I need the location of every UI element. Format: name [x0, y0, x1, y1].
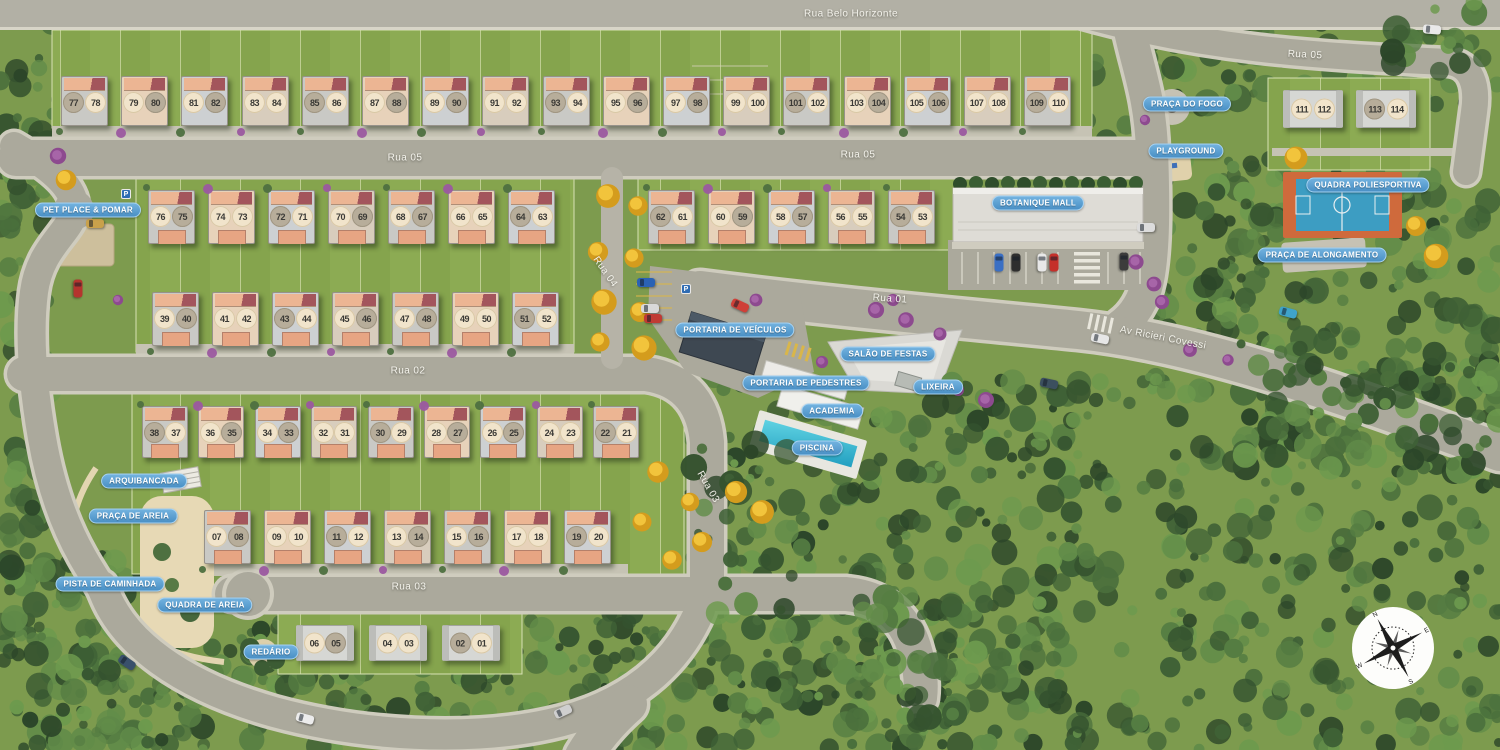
quaresmeira-tree [443, 184, 453, 194]
house-roof [271, 192, 312, 205]
house-numbers: 101102 [784, 92, 829, 113]
lot-number: 42 [236, 308, 257, 329]
quaresmeira-tree [598, 128, 608, 138]
lot-number: 53 [912, 206, 933, 227]
lot-number: 58 [770, 206, 791, 227]
house-roof [425, 78, 466, 91]
house-garage [398, 230, 426, 244]
house-garage [778, 230, 806, 244]
house-lot-58-57[interactable]: 5857 [768, 190, 815, 244]
road-belo-horizonte [0, 0, 1500, 27]
house-lot-38-37[interactable]: 3837 [142, 406, 188, 458]
house-lot-07-08[interactable]: 0708 [204, 510, 251, 564]
house-lot-70-69[interactable]: 7069 [328, 190, 375, 244]
palm-tree [267, 348, 276, 357]
house-numbers: 109110 [1025, 92, 1070, 113]
car [1120, 253, 1129, 271]
house-lot-56-55[interactable]: 5655 [828, 190, 875, 244]
house-lot-54-53[interactable]: 5453 [888, 190, 935, 244]
lot-number: 65 [472, 206, 493, 227]
lot-number: 93 [545, 92, 566, 113]
house-lot-28-27[interactable]: 2827 [424, 406, 470, 458]
house-roof [451, 192, 492, 205]
lot-number: 49 [454, 308, 475, 329]
house-roof [391, 192, 432, 205]
house-numbers: 2625 [481, 422, 525, 443]
lot-number: 60 [710, 206, 731, 227]
amenity-label-red-rio: REDÁRIO [244, 645, 299, 660]
lot-number: 33 [278, 422, 299, 443]
house-numbers: 0910 [265, 526, 310, 547]
palm-tree [899, 128, 908, 137]
amenity-label-botanique-mall: BOTANIQUE MALL [992, 196, 1084, 211]
house-lot-93-94[interactable]: 9394 [543, 76, 590, 126]
house-garage [162, 332, 190, 346]
amenity-label-quadra-poliesportiva: QUADRA POLIESPORTIVA [1306, 178, 1429, 193]
house-roof [540, 408, 580, 421]
house-lot-47-48[interactable]: 4748 [392, 292, 439, 346]
house-roof [151, 192, 192, 205]
lot-number: 91 [484, 92, 505, 113]
lot-number: 25 [503, 422, 524, 443]
house-numbers: 8990 [423, 92, 468, 113]
car [641, 304, 659, 313]
house-numbers: 9596 [604, 92, 649, 113]
house-roof [847, 78, 888, 91]
lot-number: 80 [145, 92, 166, 113]
amenity-label-pista-de-caminhada: PISTA DE CAMINHADA [56, 577, 165, 592]
house-roof [201, 408, 241, 421]
amenity-label-portaria-de-pedestres: PORTARIA DE PEDESTRES [742, 376, 869, 391]
house-garage [462, 332, 490, 346]
house-roof [387, 512, 428, 525]
house-lot-81-82[interactable]: 8182 [181, 76, 228, 126]
lot-number: 01 [471, 633, 492, 654]
house-lot-06-05[interactable]: 0605 [296, 625, 354, 661]
house-numbers: 7271 [269, 206, 314, 227]
house-roof [567, 512, 608, 525]
car [1012, 254, 1021, 272]
house-garage [342, 332, 370, 346]
lot-number: 56 [830, 206, 851, 227]
house-roof [258, 408, 298, 421]
house-roof [64, 78, 105, 91]
lot-number: 07 [206, 526, 227, 547]
lot-number: 95 [605, 92, 626, 113]
house-garage [218, 230, 246, 244]
house-numbers: 0605 [303, 633, 347, 654]
house-roof [145, 408, 185, 421]
house-numbers: 3433 [256, 422, 300, 443]
lot-number: 32 [313, 422, 334, 443]
quaresmeira-tree [532, 401, 540, 409]
house-lot-91-92[interactable]: 9192 [482, 76, 529, 126]
house-lot-60-59[interactable]: 6059 [708, 190, 755, 244]
lot-number: 14 [408, 526, 429, 547]
house-lot-17-18[interactable]: 1718 [504, 510, 551, 564]
lot-number: 35 [221, 422, 242, 443]
house-lot-76-75[interactable]: 7675 [148, 190, 195, 244]
house-numbers: 8586 [303, 92, 348, 113]
lot-number: 88 [386, 92, 407, 113]
house-lot-113-114[interactable]: 113114 [1356, 90, 1416, 128]
house-garage [274, 550, 302, 564]
house-numbers: 1920 [565, 526, 610, 547]
house-lot-39-40[interactable]: 3940 [152, 292, 199, 346]
car [1038, 254, 1047, 272]
lot-number: 74 [210, 206, 231, 227]
quaresmeira-tree [327, 348, 335, 356]
house-numbers: 6665 [449, 206, 494, 227]
house-roof [606, 78, 647, 91]
house-garage [282, 332, 310, 346]
house-garage [718, 230, 746, 244]
quaresmeira-tree [357, 128, 367, 138]
car [637, 278, 655, 287]
house-lot-15-16[interactable]: 1516 [444, 510, 491, 564]
house-roof [831, 192, 872, 205]
palm-tree [250, 401, 259, 410]
house-roof [184, 78, 225, 91]
house-numbers: 2423 [538, 422, 582, 443]
house-lot-34-33[interactable]: 3433 [255, 406, 301, 458]
house-roof [596, 408, 636, 421]
house-numbers: 2221 [594, 422, 638, 443]
lot-number: 03 [398, 633, 419, 654]
car [1137, 223, 1155, 232]
house-roof [211, 192, 252, 205]
house-lot-19-20[interactable]: 1920 [564, 510, 611, 564]
lot-number: 68 [390, 206, 411, 227]
house-roof [371, 408, 411, 421]
house-roof [395, 294, 436, 307]
street-label-rua-05-2: Rua 05 [388, 153, 423, 164]
house-garage [394, 550, 422, 564]
lot-number: 90 [446, 92, 467, 113]
house-lot-66-65[interactable]: 6665 [448, 190, 495, 244]
house-garage [377, 444, 405, 458]
house-garage [214, 550, 242, 564]
house-lot-32-31[interactable]: 3231 [311, 406, 357, 458]
car [644, 314, 662, 323]
house-numbers: 6463 [509, 206, 554, 227]
palm-tree [588, 401, 595, 408]
palm-tree [387, 348, 394, 355]
house-numbers: 8384 [243, 92, 288, 113]
palm-tree [56, 128, 63, 135]
lot-number: 82 [205, 92, 226, 113]
house-numbers: 7473 [209, 206, 254, 227]
house-lot-13-14[interactable]: 1314 [384, 510, 431, 564]
house-lot-87-88[interactable]: 8788 [362, 76, 409, 126]
quaresmeira-tree [703, 184, 713, 194]
lot-number: 31 [334, 422, 355, 443]
palm-tree [147, 348, 154, 355]
house-lot-41-42[interactable]: 4142 [212, 292, 259, 346]
lot-number: 61 [672, 206, 693, 227]
house-lot-109-110[interactable]: 109110 [1024, 76, 1071, 126]
house-numbers: 4748 [393, 308, 438, 329]
lot-number: 26 [482, 422, 503, 443]
house-garage [454, 550, 482, 564]
house-roof [786, 78, 827, 91]
lot-number: 08 [228, 526, 249, 547]
lot-number: 38 [144, 422, 165, 443]
house-roof [245, 78, 286, 91]
lot-number: 87 [364, 92, 385, 113]
lot-number: 02 [450, 633, 471, 654]
house-lot-04-03[interactable]: 0403 [369, 625, 427, 661]
house-roof [891, 192, 932, 205]
house-lot-85-86[interactable]: 8586 [302, 76, 349, 126]
house-lot-97-98[interactable]: 9798 [663, 76, 710, 126]
lot-number: 29 [391, 422, 412, 443]
quaresmeira-tree [499, 566, 509, 576]
amenity-label-pra-a-de-areia: PRAÇA DE AREIA [89, 509, 178, 524]
lot-number: 59 [732, 206, 753, 227]
house-lot-22-21[interactable]: 2221 [593, 406, 639, 458]
lot-number: 78 [85, 92, 106, 113]
lot-number: 24 [539, 422, 560, 443]
lot-number: 12 [348, 526, 369, 547]
house-lot-45-46[interactable]: 4546 [332, 292, 379, 346]
lot-number: 27 [447, 422, 468, 443]
lot-number: 99 [725, 92, 746, 113]
lot-number: 113 [1364, 99, 1385, 120]
lot-number: 79 [123, 92, 144, 113]
house-garage [514, 550, 542, 564]
palm-tree [475, 401, 484, 410]
lot-number: 34 [257, 422, 278, 443]
quaresmeira-tree [116, 128, 126, 138]
house-numbers: 5857 [769, 206, 814, 227]
house-lot-95-96[interactable]: 9596 [603, 76, 650, 126]
house-garage [522, 332, 550, 346]
lot-number: 44 [296, 308, 317, 329]
lot-number: 111 [1291, 99, 1312, 120]
house-numbers: 9192 [483, 92, 528, 113]
house-numbers: 0708 [205, 526, 250, 547]
house-roof [1027, 78, 1068, 91]
lot-number: 77 [63, 92, 84, 113]
house-lot-72-71[interactable]: 7271 [268, 190, 315, 244]
house-numbers: 107108 [965, 92, 1010, 113]
lot-number: 96 [627, 92, 648, 113]
house-roof [275, 294, 316, 307]
house-roof [314, 408, 354, 421]
house-roof [124, 78, 165, 91]
house-lot-77-78[interactable]: 7778 [61, 76, 108, 126]
house-garage [402, 332, 430, 346]
house-lot-105-106[interactable]: 105106 [904, 76, 951, 126]
lot-number: 106 [928, 92, 949, 113]
house-numbers: 103104 [845, 92, 890, 113]
lot-number: 89 [424, 92, 445, 113]
amenity-label-pra-a-de-alongamento: PRAÇA DE ALONGAMENTO [1258, 248, 1387, 263]
house-numbers: 111112 [1290, 99, 1336, 120]
house-numbers: 7675 [149, 206, 194, 227]
lot-number: 102 [807, 92, 828, 113]
car [995, 254, 1004, 272]
lot-number: 37 [165, 422, 186, 443]
lot-number: 55 [852, 206, 873, 227]
quaresmeira-tree [959, 128, 967, 136]
house-numbers: 0201 [449, 633, 493, 654]
house-numbers: 8182 [182, 92, 227, 113]
house-garage [222, 332, 250, 346]
lot-number: 40 [176, 308, 197, 329]
house-lot-107-108[interactable]: 107108 [964, 76, 1011, 126]
house-roof [511, 192, 552, 205]
house-lot-99-100[interactable]: 99100 [723, 76, 770, 126]
house-roof [485, 78, 526, 91]
house-roof [447, 512, 488, 525]
house-roof [155, 294, 196, 307]
palm-tree [363, 401, 370, 408]
lot-number: 50 [476, 308, 497, 329]
lot-number: 109 [1026, 92, 1047, 113]
house-roof [215, 294, 256, 307]
house-lot-74-73[interactable]: 7473 [208, 190, 255, 244]
lot-number: 81 [183, 92, 204, 113]
lot-number: 39 [154, 308, 175, 329]
house-roof [666, 78, 707, 91]
house-garage [658, 230, 686, 244]
lot-number: 108 [988, 92, 1009, 113]
lot-number: 54 [890, 206, 911, 227]
house-numbers: 5655 [829, 206, 874, 227]
house-lot-68-67[interactable]: 6867 [388, 190, 435, 244]
house-lot-83-84[interactable]: 8384 [242, 76, 289, 126]
quaresmeira-tree [203, 184, 213, 194]
house-lot-111-112[interactable]: 111112 [1283, 90, 1343, 128]
lot-number: 41 [214, 308, 235, 329]
street-label-rua-05-3: Rua 05 [841, 150, 876, 161]
house-numbers: 6059 [709, 206, 754, 227]
house-garage [207, 444, 235, 458]
house-numbers: 3231 [312, 422, 356, 443]
house-lot-09-10[interactable]: 0910 [264, 510, 311, 564]
house-lot-79-80[interactable]: 7980 [121, 76, 168, 126]
palm-tree [319, 566, 328, 575]
house-lot-49-50[interactable]: 4950 [452, 292, 499, 346]
house-lot-30-29[interactable]: 3029 [368, 406, 414, 458]
car [74, 280, 83, 298]
house-lot-101-102[interactable]: 101102 [783, 76, 830, 126]
street-label-rua-01-5: Rua 01 [872, 292, 907, 305]
lot-number: 16 [468, 526, 489, 547]
house-roof [483, 408, 523, 421]
quaresmeira-tree [237, 128, 245, 136]
house-roof [651, 192, 692, 205]
quaresmeira-tree [447, 348, 457, 358]
lot-number: 75 [172, 206, 193, 227]
quaresmeira-tree [323, 184, 331, 192]
palm-tree [383, 184, 390, 191]
house-lot-43-44[interactable]: 4344 [272, 292, 319, 346]
lot-number: 92 [506, 92, 527, 113]
quaresmeira-tree [823, 184, 831, 192]
lot-number: 101 [785, 92, 806, 113]
house-lot-02-01[interactable]: 0201 [442, 625, 500, 661]
house-numbers: 3635 [199, 422, 243, 443]
lot-number: 52 [536, 308, 557, 329]
lot-number: 105 [906, 92, 927, 113]
house-numbers: 1314 [385, 526, 430, 547]
house-roof [327, 512, 368, 525]
lot-number: 45 [334, 308, 355, 329]
house-numbers: 1112 [325, 526, 370, 547]
palm-tree [559, 566, 568, 575]
palm-tree [263, 184, 272, 193]
amenity-label-pet-place-pomar: PET PLACE & POMAR [35, 203, 141, 218]
house-numbers: 3837 [143, 422, 187, 443]
quaresmeira-tree [193, 401, 203, 411]
parking-sign: P [121, 189, 131, 199]
house-garage [574, 550, 602, 564]
palm-tree [297, 128, 304, 135]
house-roof [365, 78, 406, 91]
lot-number: 103 [846, 92, 867, 113]
house-garage [898, 230, 926, 244]
house-lot-24-23[interactable]: 2423 [537, 406, 583, 458]
house-numbers: 113114 [1363, 99, 1409, 120]
lot-number: 46 [356, 308, 377, 329]
palm-tree [883, 184, 890, 191]
house-garage [264, 444, 292, 458]
palm-tree [507, 348, 516, 357]
house-numbers: 99100 [724, 92, 769, 113]
palm-tree [439, 566, 446, 573]
amenity-label-sal-o-de-festas: SALÃO DE FESTAS [840, 347, 935, 362]
house-lot-11-12[interactable]: 1112 [324, 510, 371, 564]
house-lot-36-35[interactable]: 3635 [198, 406, 244, 458]
house-roof [455, 294, 496, 307]
house-lot-26-25[interactable]: 2625 [480, 406, 526, 458]
house-lot-51-52[interactable]: 5152 [512, 292, 559, 346]
lot-number: 17 [506, 526, 527, 547]
quaresmeira-tree [718, 128, 726, 136]
house-garage [334, 550, 362, 564]
lot-number: 11 [326, 526, 347, 547]
house-numbers: 5453 [889, 206, 934, 227]
quaresmeira-tree [839, 128, 849, 138]
lot-number: 05 [325, 633, 346, 654]
house-lot-103-104[interactable]: 103104 [844, 76, 891, 126]
lot-number: 62 [650, 206, 671, 227]
lot-number: 114 [1387, 99, 1408, 120]
house-lot-64-63[interactable]: 6463 [508, 190, 555, 244]
house-roof [771, 192, 812, 205]
lot-number: 13 [386, 526, 407, 547]
lot-number: 94 [567, 92, 588, 113]
masterplan: N E S W Rua Belo HorizonteRua 05Rua 05Ru… [0, 0, 1500, 750]
street-label-rua-03-9: Rua 03 [392, 582, 427, 593]
house-numbers: 7980 [122, 92, 167, 113]
house-lot-62-61[interactable]: 6261 [648, 190, 695, 244]
house-numbers: 0403 [376, 633, 420, 654]
house-numbers: 3940 [153, 308, 198, 329]
house-roof [907, 78, 948, 91]
house-garage [602, 444, 630, 458]
street-label-rua-02-6: Rua 02 [391, 366, 426, 377]
house-lot-89-90[interactable]: 8990 [422, 76, 469, 126]
amenity-label-portaria-de-ve-culos: PORTARIA DE VEÍCULOS [675, 323, 794, 338]
house-numbers: 7069 [329, 206, 374, 227]
house-garage [151, 444, 179, 458]
amenity-label-playground: PLAYGROUND [1148, 144, 1223, 159]
street-label-rua-05-1: Rua 05 [1287, 49, 1322, 62]
